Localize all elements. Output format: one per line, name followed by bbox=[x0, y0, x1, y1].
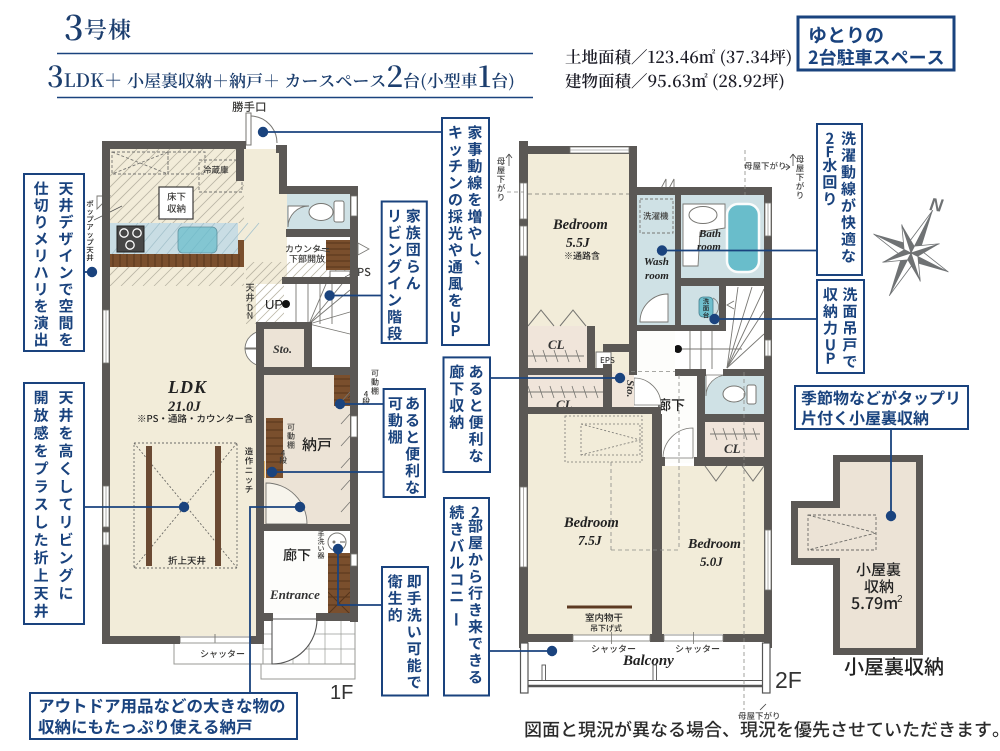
svg-text:Balcony: Balcony bbox=[622, 653, 674, 669]
svg-text:Bedroom: Bedroom bbox=[563, 515, 619, 531]
svg-text:1F: 1F bbox=[330, 682, 353, 704]
svg-text:Bedroom: Bedroom bbox=[687, 537, 741, 552]
svg-text:room: room bbox=[645, 270, 669, 282]
svg-text:CL: CL bbox=[724, 441, 741, 456]
svg-text:Entrance: Entrance bbox=[269, 587, 320, 602]
svg-text:Bedroom: Bedroom bbox=[552, 217, 608, 233]
svg-text:5.5J: 5.5J bbox=[566, 235, 591, 250]
svg-text:7.5J: 7.5J bbox=[578, 533, 603, 548]
svg-text:UP: UP bbox=[265, 297, 283, 312]
svg-text:5.0J: 5.0J bbox=[700, 554, 723, 569]
svg-text:CL: CL bbox=[548, 337, 565, 352]
svg-text:Bath: Bath bbox=[698, 228, 721, 240]
svg-text:2F: 2F bbox=[775, 667, 802, 693]
svg-text:Sto.: Sto. bbox=[273, 342, 292, 356]
svg-text:Wash: Wash bbox=[644, 256, 669, 268]
svg-text:2: 2 bbox=[897, 594, 903, 605]
svg-text:LDK: LDK bbox=[167, 377, 208, 397]
svg-text:21.0J: 21.0J bbox=[167, 399, 201, 415]
svg-text:Sto.: Sto. bbox=[624, 380, 636, 397]
